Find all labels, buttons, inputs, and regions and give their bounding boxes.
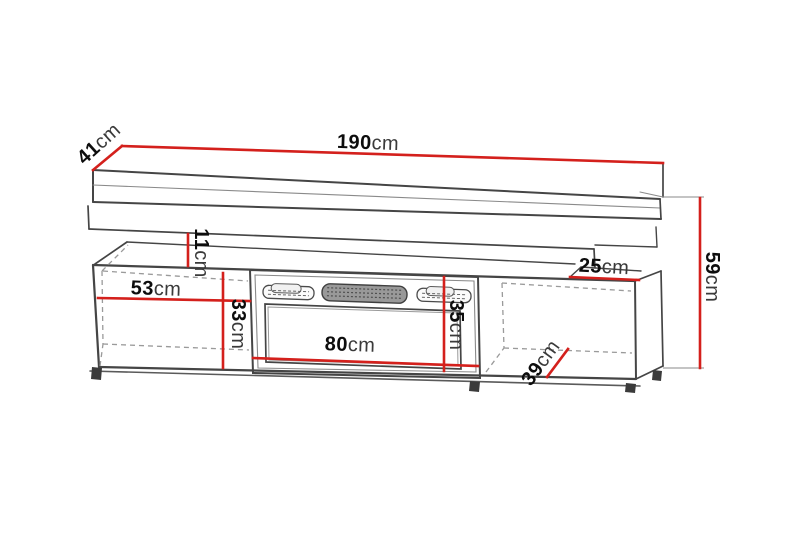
fireplace-vent-center [322, 284, 408, 304]
diagram-linework [0, 0, 800, 533]
dim-label-total-height: 59cm [702, 252, 722, 303]
wall-shelf-outline [88, 163, 663, 268]
dim-label-right-top-depth: 25cm [578, 256, 629, 279]
dim-label-fireplace-height: 35cm [446, 300, 466, 351]
extension-lines [663, 197, 704, 368]
dim-label-fireplace-width: 80cm [324, 334, 375, 356]
dim-label-gap-height: 11cm [191, 228, 211, 277]
dim-label-cabinet-height: 33cm [228, 299, 248, 350]
furniture-dimension-diagram: 190cm 41cm 11cm 25cm 53cm 33cm 80cm 35cm… [0, 0, 800, 533]
dim-label-total-width: 190cm [337, 132, 400, 154]
cabinet-feet [91, 367, 662, 393]
dim-label-left-cabinet-width: 53cm [130, 278, 181, 300]
fireplace-vent-left [263, 283, 314, 300]
